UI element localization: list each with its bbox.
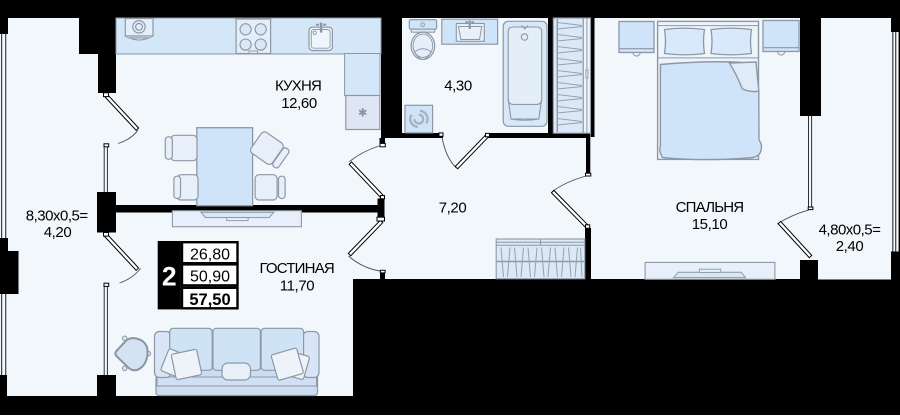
svg-text:7,20: 7,20 bbox=[439, 200, 467, 217]
svg-text:4,20: 4,20 bbox=[44, 224, 72, 241]
svg-text:4,80х0,5=: 4,80х0,5= bbox=[819, 222, 882, 239]
svg-text:ГОСТИНАЯ: ГОСТИНАЯ bbox=[259, 260, 334, 277]
svg-text:26,80: 26,80 bbox=[190, 247, 230, 264]
svg-text:КУХНЯ: КУХНЯ bbox=[275, 78, 321, 95]
svg-text:2: 2 bbox=[162, 262, 177, 292]
svg-text:50,90: 50,90 bbox=[190, 269, 230, 286]
svg-text:57,50: 57,50 bbox=[189, 291, 230, 309]
svg-text:2,40: 2,40 bbox=[836, 238, 864, 255]
svg-text:СПАЛЬНЯ: СПАЛЬНЯ bbox=[676, 199, 744, 216]
svg-text:4,30: 4,30 bbox=[444, 77, 472, 94]
svg-text:12,60: 12,60 bbox=[281, 95, 317, 112]
svg-text:11,70: 11,70 bbox=[280, 277, 314, 294]
svg-text:15,10: 15,10 bbox=[692, 216, 728, 233]
svg-text:✱: ✱ bbox=[358, 108, 368, 120]
svg-text:8,30х0,5=: 8,30х0,5= bbox=[26, 207, 89, 224]
